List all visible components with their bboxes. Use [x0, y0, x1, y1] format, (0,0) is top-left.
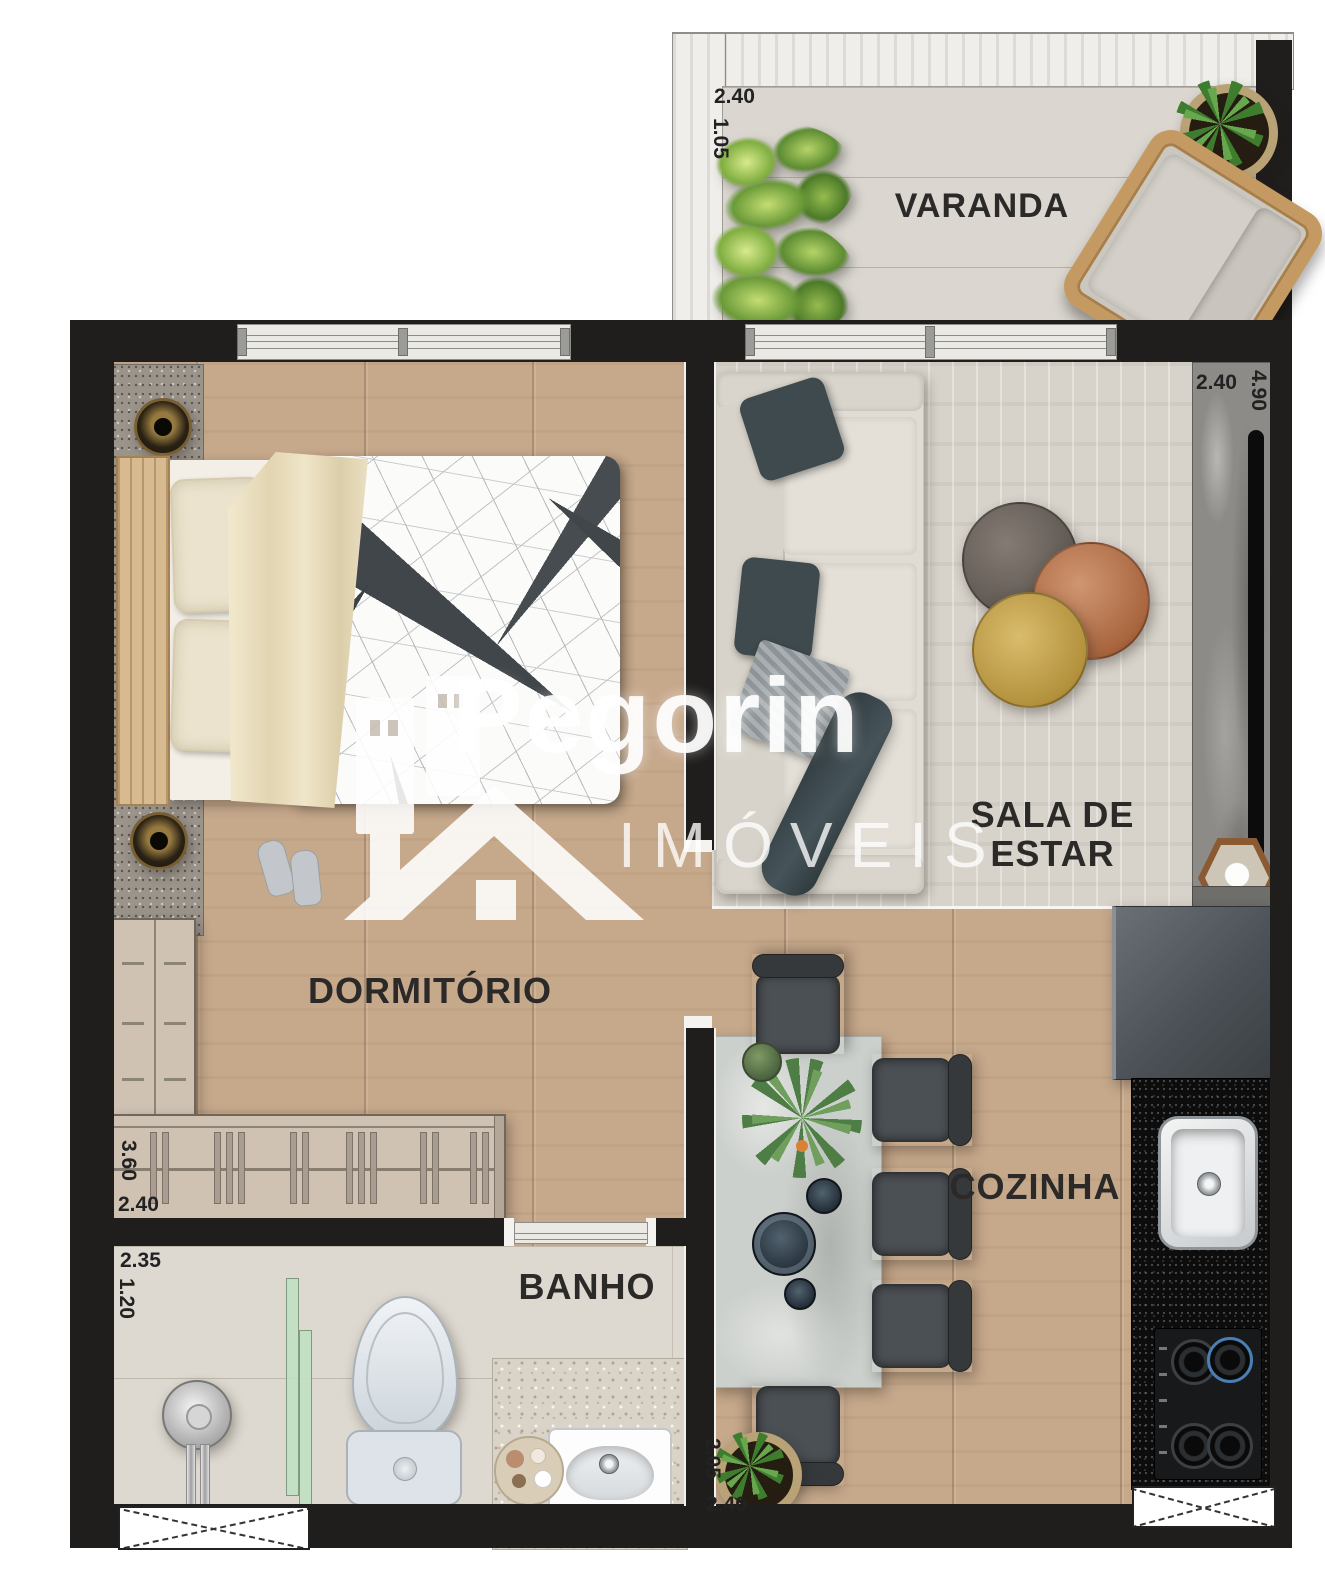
- room-label-sala-line1: SALA DE: [940, 796, 1165, 835]
- floor-lamp-icon: [134, 398, 192, 456]
- dim-cozinha-width: 2.40: [706, 1494, 747, 1515]
- door-jamb: [684, 1016, 712, 1028]
- wall-bathroom-top: [112, 1218, 514, 1246]
- window-mullion: [237, 328, 247, 356]
- floor-lamp-icon: [130, 812, 188, 870]
- kitchen-sink: [1158, 1116, 1258, 1250]
- dim-varanda-depth: 1.05: [710, 118, 731, 159]
- slipper-icon: [289, 849, 323, 908]
- succulent-icon: [742, 1042, 782, 1082]
- fridge: [1112, 906, 1277, 1080]
- dim-varanda-width: 2.40: [714, 86, 755, 107]
- bedroom-wardrobe: [112, 1114, 506, 1222]
- dim-dormitorio-width: 2.40: [118, 1194, 159, 1215]
- door-jamb: [684, 840, 712, 852]
- balcony-railing-top: [672, 32, 1294, 90]
- room-label-cozinha: COZINHA: [940, 1168, 1130, 1207]
- dim-cozinha-depth: 2.05: [702, 1438, 723, 1479]
- door-mullion: [1106, 328, 1116, 356]
- room-label-banho: BANHO: [512, 1268, 662, 1307]
- wall-left: [70, 320, 114, 1548]
- wall-bedroom-living: [684, 1028, 716, 1506]
- dim-dormitorio-depth: 3.60: [118, 1140, 139, 1181]
- dim-banho-width: 2.35: [120, 1250, 161, 1271]
- coffee-table: [972, 592, 1088, 708]
- dim-banho-depth: 1.20: [116, 1278, 137, 1319]
- door-mullion: [745, 328, 755, 356]
- door-mullion: [925, 326, 935, 358]
- bathroom-door-sill: [514, 1222, 648, 1244]
- table-plant-icon: [752, 1068, 852, 1168]
- room-label-sala: SALA DE ESTAR: [940, 796, 1165, 874]
- toiletries-tray: [494, 1436, 564, 1506]
- dim-sala-depth: 4.90: [1248, 370, 1269, 411]
- dining-chair: [752, 954, 844, 1054]
- wall-bedroom-living: [684, 362, 716, 850]
- wall-right: [1270, 320, 1292, 1548]
- room-label-dormitorio: DORMITÓRIO: [298, 972, 562, 1011]
- dim-sala-width: 2.40: [1196, 372, 1237, 393]
- tv-icon: [1248, 430, 1264, 874]
- floor-plan: VARANDA 2.40 1.05 SALA DE ESTAR 2.40 4.9…: [0, 0, 1325, 1575]
- bowl-icon: [752, 1212, 816, 1276]
- cooktop: [1154, 1328, 1262, 1480]
- toilet-tank: [346, 1430, 462, 1506]
- shower-glass-panel: [286, 1278, 299, 1496]
- window-mullion: [560, 328, 570, 356]
- cup-icon: [784, 1278, 816, 1310]
- kitchen-window-hatch: [1132, 1486, 1276, 1528]
- door-jamb: [504, 1218, 514, 1246]
- candle-icon: [796, 1140, 808, 1152]
- room-label-sala-line2: ESTAR: [940, 835, 1165, 874]
- bathroom-window-hatch: [118, 1506, 310, 1550]
- dining-chair: [872, 1054, 972, 1146]
- room-label-varanda: VARANDA: [872, 188, 1092, 225]
- cup-icon: [806, 1178, 842, 1214]
- bed-headboard: [116, 456, 170, 806]
- dining-chair: [872, 1280, 972, 1372]
- window-mullion: [398, 328, 408, 356]
- shower-head-icon: [162, 1380, 232, 1450]
- bedroom-cabinet: [112, 918, 196, 1118]
